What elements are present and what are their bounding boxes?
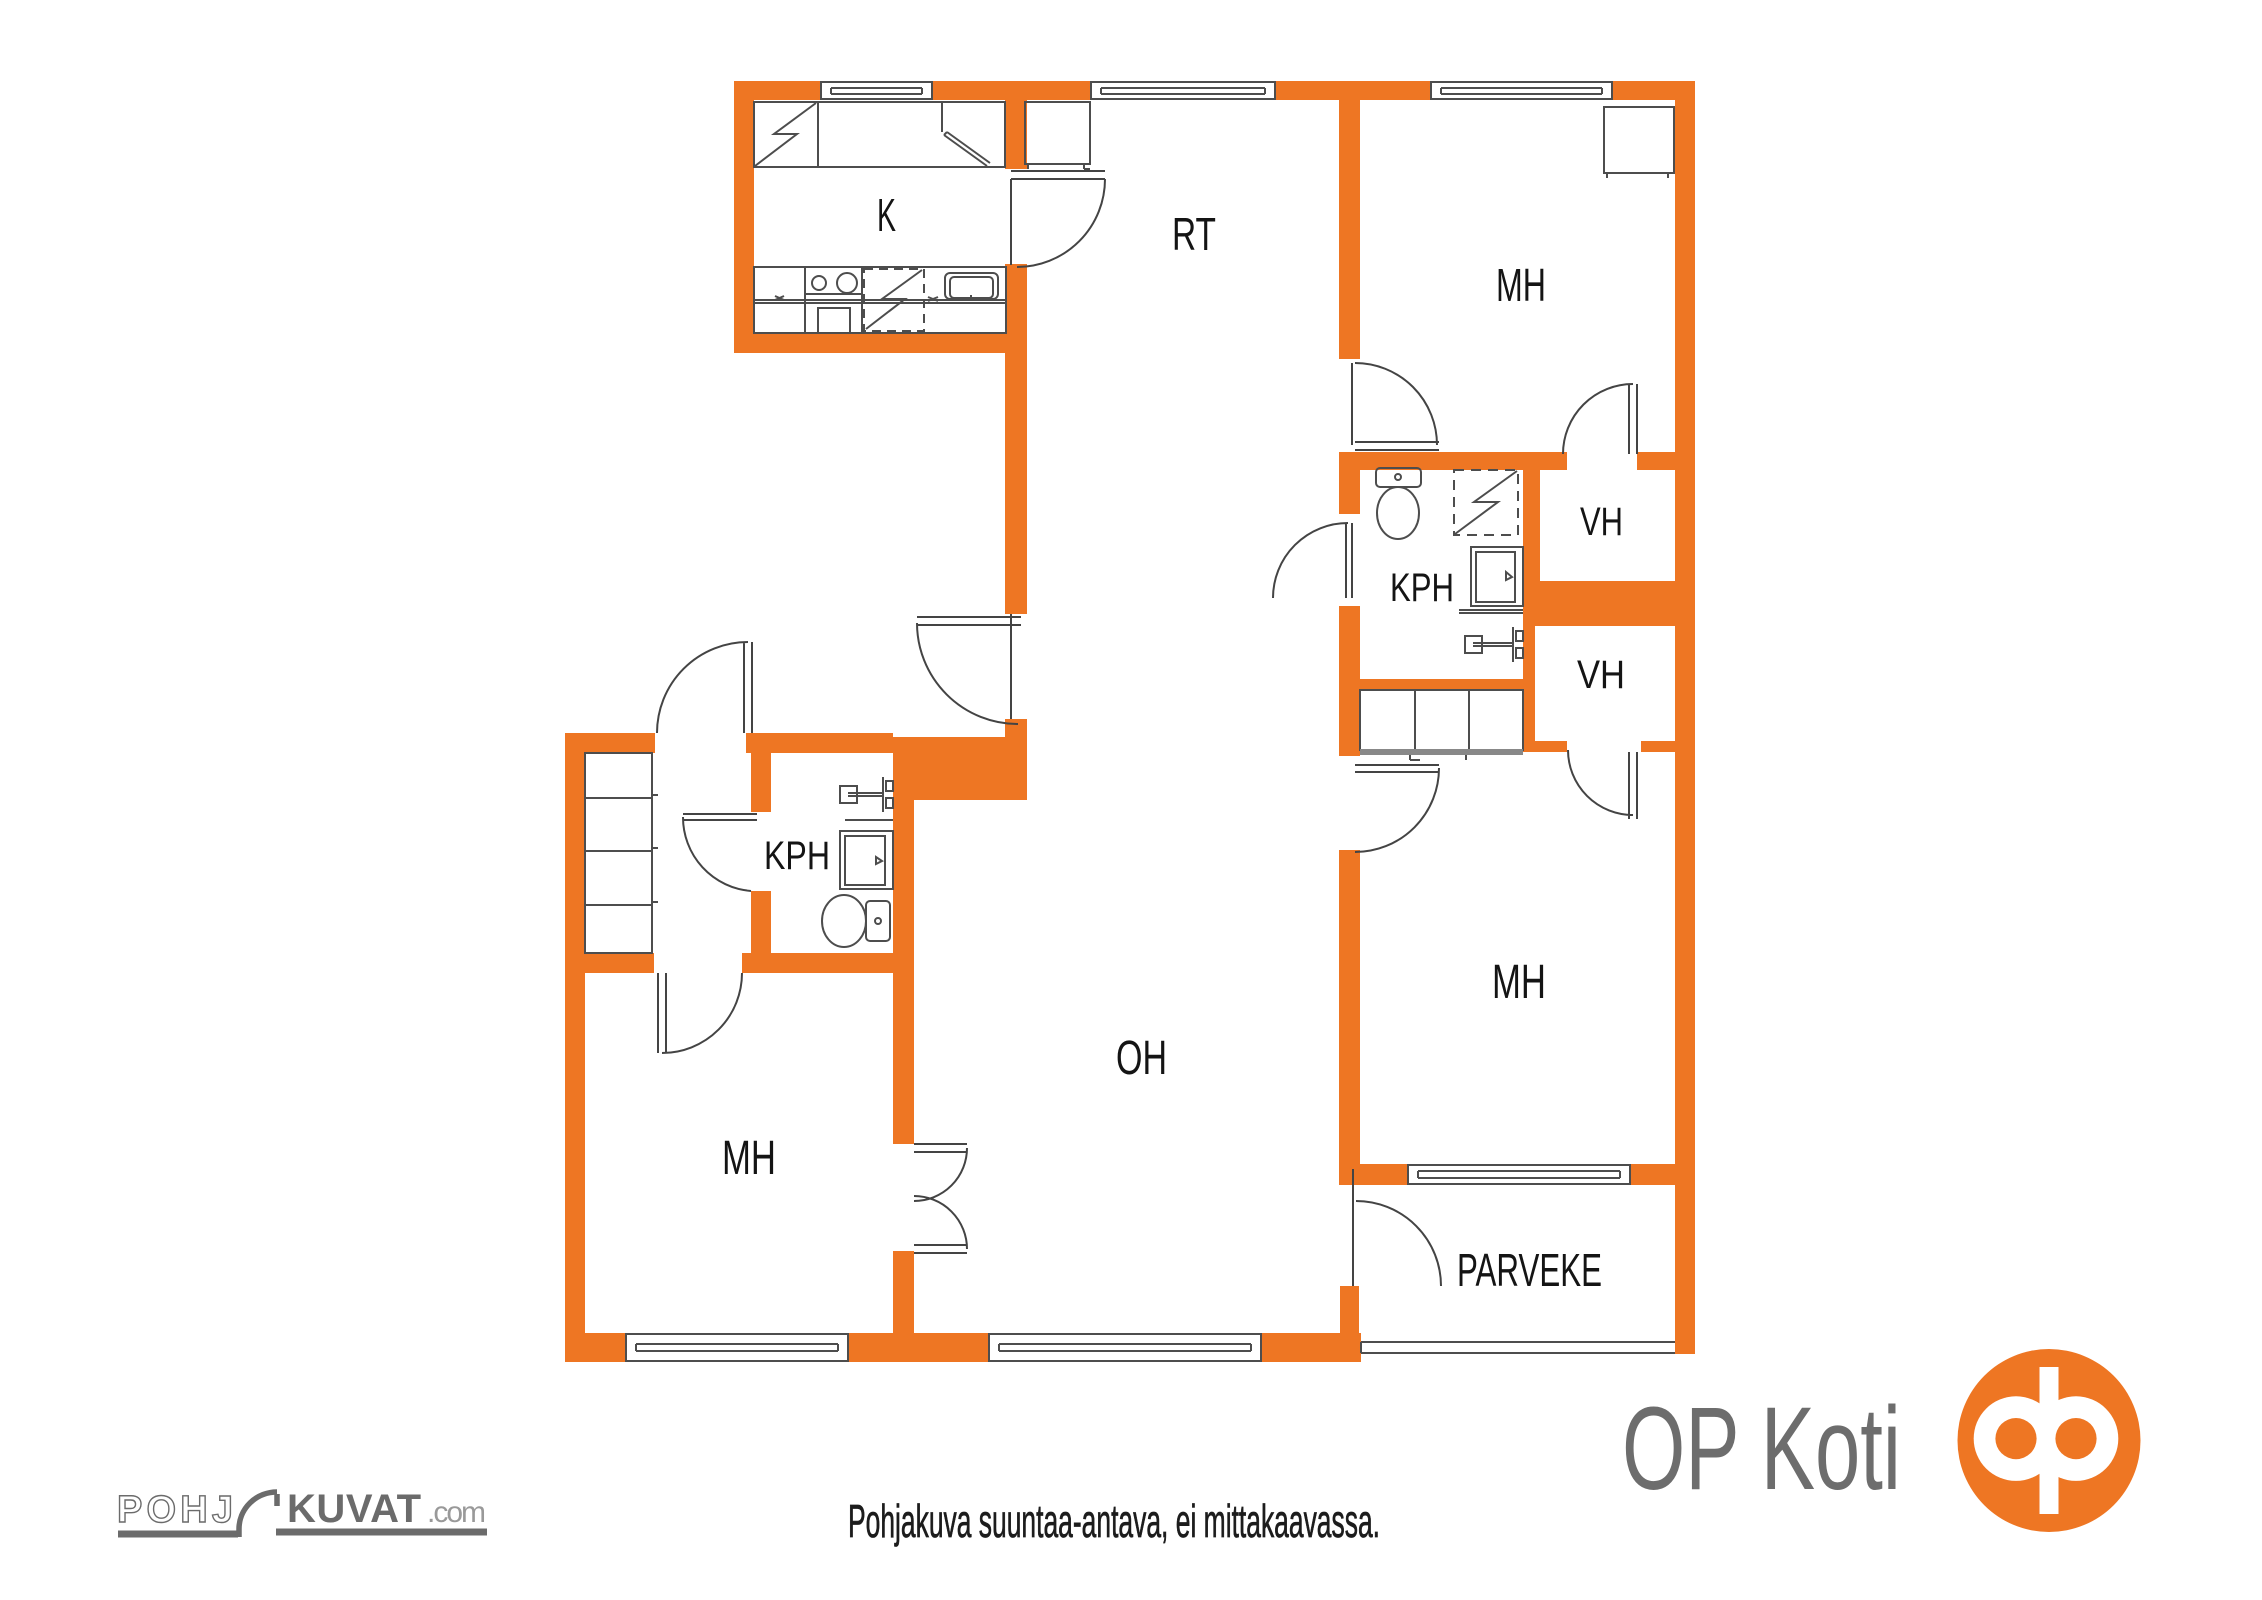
svg-text:MH: MH	[1496, 259, 1546, 311]
svg-text:KPH: KPH	[1390, 566, 1454, 610]
svg-text:POHJ: POHJ	[117, 1489, 233, 1531]
svg-text:.com: .com	[427, 1496, 486, 1529]
svg-text:KUVAT: KUVAT	[287, 1487, 421, 1531]
svg-text:OP Koti: OP Koti	[1622, 1383, 1901, 1515]
svg-text:PARVEKE: PARVEKE	[1457, 1244, 1602, 1296]
svg-text:VH: VH	[1577, 653, 1625, 697]
svg-text:MH: MH	[1492, 956, 1546, 1009]
svg-text:K: K	[877, 189, 896, 241]
svg-text:VH: VH	[1580, 500, 1623, 544]
svg-text:MH: MH	[722, 1132, 776, 1185]
svg-text:RT: RT	[1172, 208, 1216, 260]
svg-text:KPH: KPH	[764, 834, 830, 878]
svg-text:OH: OH	[1116, 1032, 1167, 1085]
svg-text:Pohjakuva suuntaa-antava, ei m: Pohjakuva suuntaa-antava, ei mittakaavas…	[848, 1495, 1380, 1547]
